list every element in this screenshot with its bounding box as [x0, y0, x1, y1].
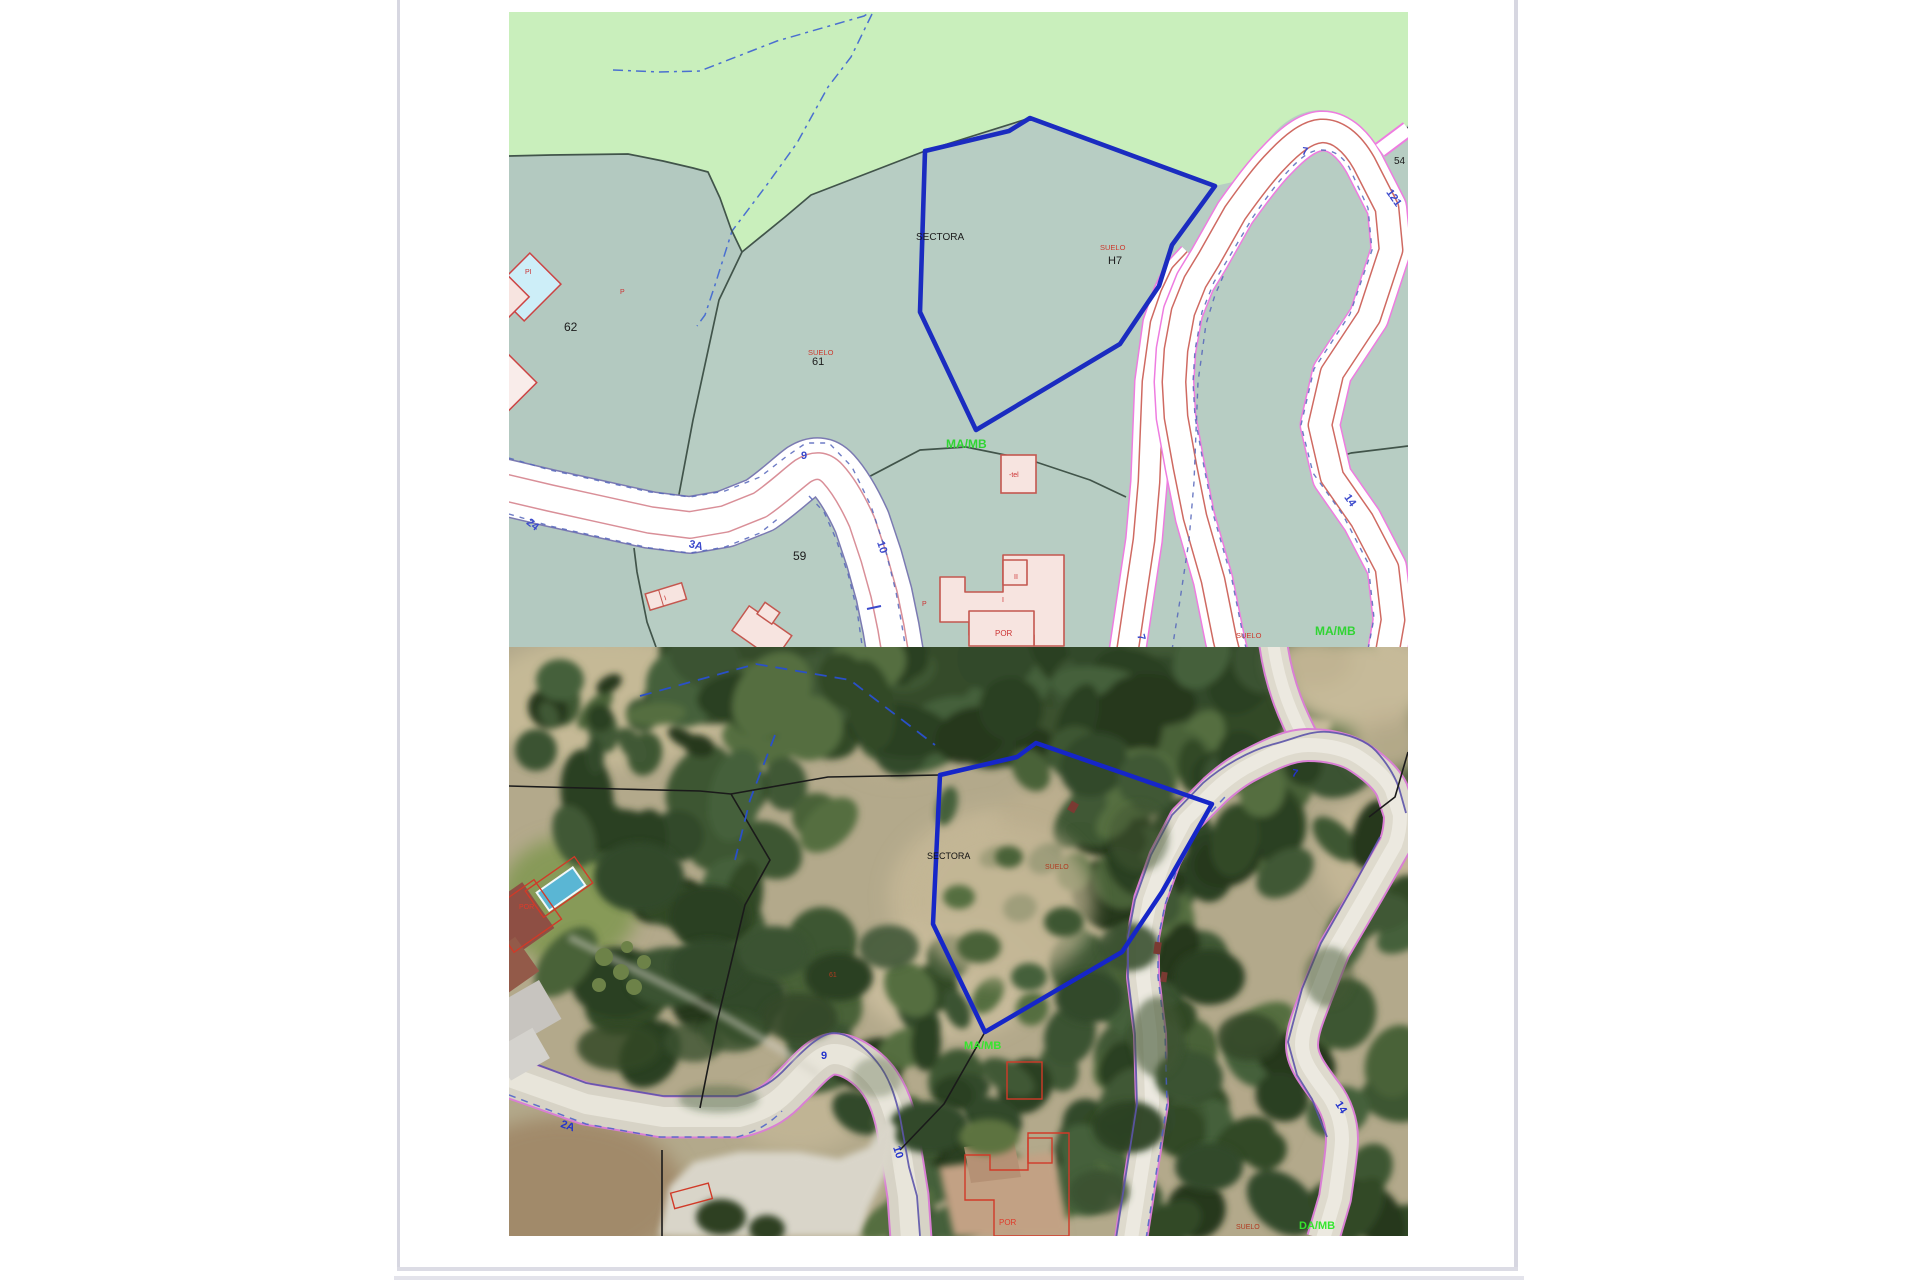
- svg-text:SECTORA: SECTORA: [916, 232, 964, 243]
- svg-text:POR: POR: [519, 904, 534, 911]
- svg-text:MA/MB: MA/MB: [1315, 624, 1356, 638]
- svg-text:H7: H7: [1108, 255, 1122, 267]
- svg-text:MA/MB: MA/MB: [946, 437, 987, 451]
- svg-text:P: P: [620, 289, 625, 296]
- svg-text:SUELO: SUELO: [1236, 631, 1262, 640]
- svg-text:54: 54: [1394, 156, 1406, 167]
- svg-text:SUELO: SUELO: [1100, 243, 1126, 252]
- svg-text:SECTORA: SECTORA: [927, 851, 970, 861]
- svg-text:61: 61: [812, 356, 824, 368]
- svg-text:POR: POR: [999, 1218, 1017, 1227]
- svg-text:9: 9: [801, 450, 807, 462]
- svg-text:SUELO: SUELO: [1236, 1224, 1260, 1231]
- svg-text:SUELO: SUELO: [1045, 864, 1069, 871]
- svg-text:SUELO: SUELO: [808, 348, 834, 357]
- svg-text:POR: POR: [995, 629, 1013, 638]
- svg-text:PI: PI: [525, 269, 532, 276]
- svg-text:MA/MB: MA/MB: [964, 1040, 1001, 1052]
- svg-text:9: 9: [821, 1050, 827, 1062]
- svg-text:59: 59: [793, 549, 807, 563]
- svg-text:P: P: [922, 601, 927, 608]
- svg-text:61: 61: [829, 972, 837, 979]
- svg-text:DA/MB: DA/MB: [1299, 1220, 1335, 1232]
- svg-text:-tel: -tel: [1009, 472, 1019, 479]
- svg-text:62: 62: [564, 320, 578, 334]
- svg-text:II: II: [1014, 574, 1018, 581]
- svg-text:I: I: [1002, 597, 1004, 604]
